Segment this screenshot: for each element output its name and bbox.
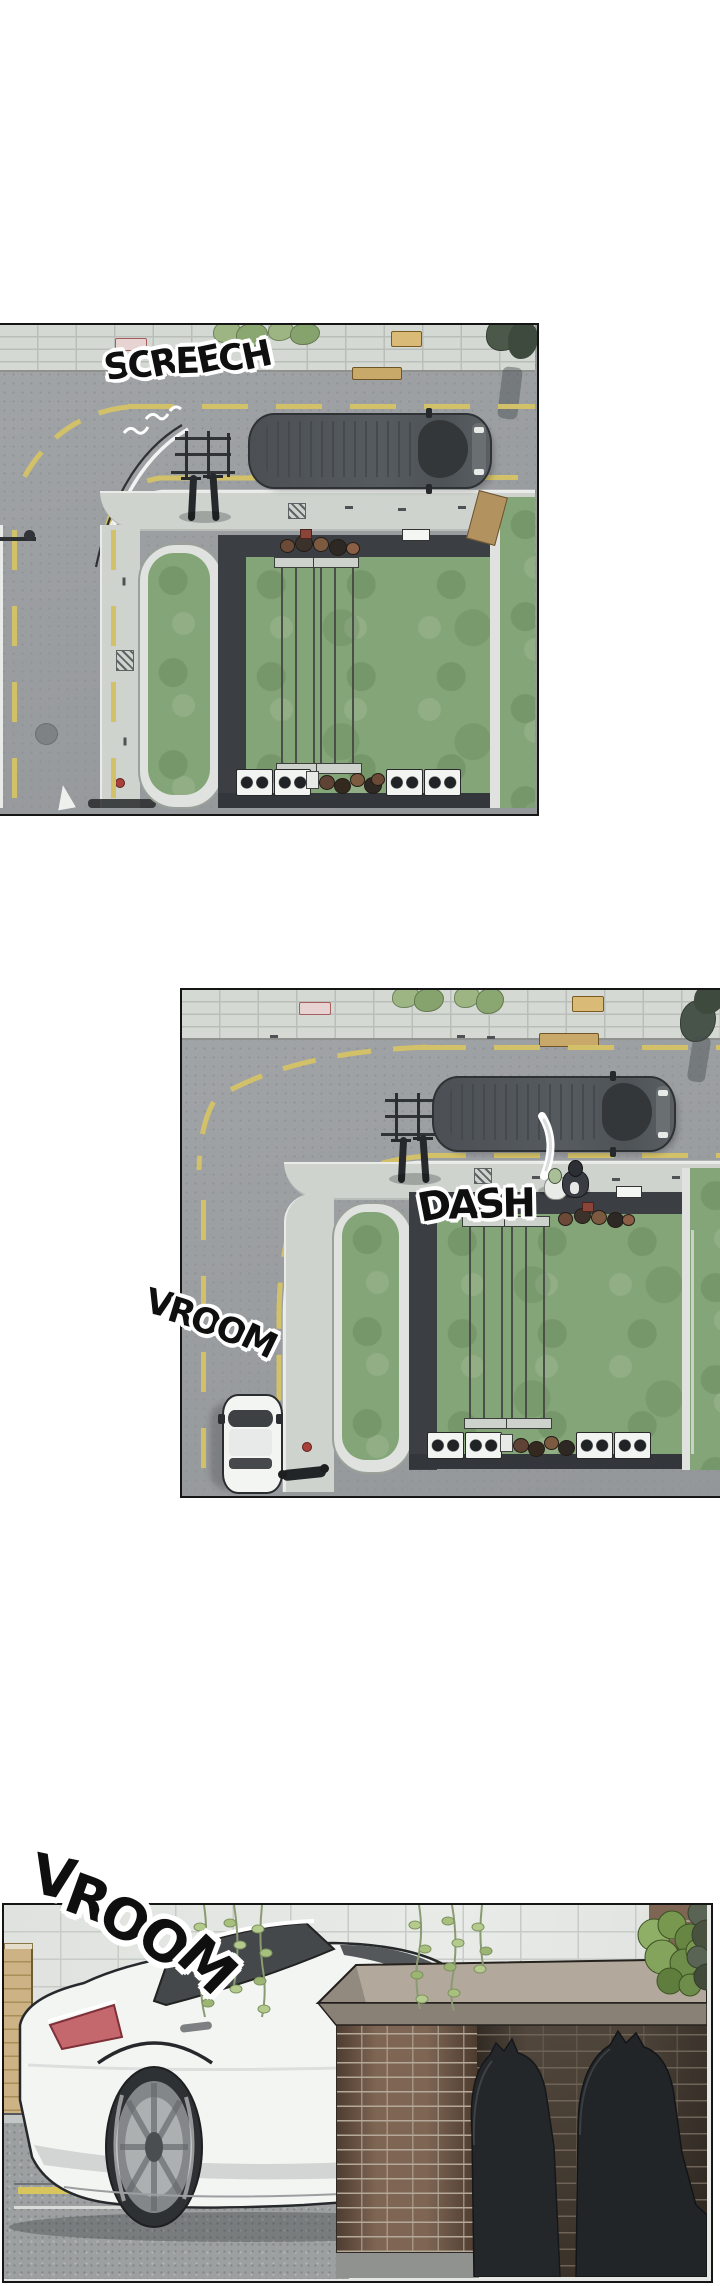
car-rear-window [229, 1458, 272, 1469]
curb-hatch [288, 503, 306, 519]
plant-pot [329, 539, 347, 556]
plant-pot [280, 539, 295, 553]
skid-squiggle [124, 427, 148, 433]
person-silhouette-right [576, 2031, 707, 2277]
curb-line-left [0, 525, 3, 808]
tick-mark [398, 508, 406, 511]
lamp-post-head [24, 530, 35, 541]
bicycle-handlebar [203, 475, 223, 478]
wall-cap-front [318, 2003, 707, 2025]
car-mirror [218, 1414, 225, 1424]
bike-rack-post [185, 431, 188, 479]
plant-pot [334, 778, 351, 794]
table-bench [313, 557, 359, 568]
lane-line-vertical [111, 530, 116, 806]
long-table [281, 563, 315, 771]
skid-squiggle [146, 414, 168, 419]
foreground-layer [4, 1905, 707, 2277]
green-strip-right [500, 497, 535, 808]
tick-mark [458, 506, 466, 509]
plant-pot [319, 775, 335, 790]
scooter-wheel [278, 1470, 287, 1479]
car-windshield [228, 1410, 273, 1427]
curb-hatch [116, 650, 134, 671]
tick-mark [123, 578, 126, 586]
long-table [320, 563, 354, 771]
courtyard-frame-left [218, 535, 246, 808]
panel-1-aerial-intersection: SCREECH [0, 323, 539, 816]
plant-pot [346, 542, 360, 555]
crate-stack [306, 771, 319, 789]
white-car-topview [222, 1394, 283, 1494]
ac-unit [236, 769, 273, 796]
panel-2-aerial-street: DASH [180, 988, 720, 1498]
bike-rack-bar [171, 471, 235, 474]
van-windshield [418, 420, 468, 478]
car-roof [229, 1429, 272, 1456]
plant-pot [371, 773, 385, 786]
van-mirror [426, 484, 432, 494]
person-light-head [548, 1168, 562, 1184]
hydrant-dot [115, 778, 125, 788]
plant-pot [350, 773, 365, 787]
bike-shadow [179, 511, 231, 523]
lane-line-curve [16, 407, 128, 493]
skid-squiggle [170, 407, 181, 411]
lane-line-vertical [12, 530, 17, 806]
bike-rack-bar [175, 437, 231, 440]
bike-rack-post [207, 431, 210, 479]
bike-rack-bar [175, 453, 231, 456]
bike-rack-post [227, 433, 230, 477]
lawn [148, 553, 210, 795]
courtyard-gate [402, 529, 430, 541]
sfx-dash: DASH [416, 1176, 534, 1228]
manhole-cover [35, 723, 58, 745]
parked-bicycles-row [88, 799, 156, 808]
scooter-wheel [320, 1464, 329, 1473]
comic-page: SCREECH [0, 0, 720, 2286]
ac-unit [424, 769, 461, 796]
ac-unit [386, 769, 423, 796]
panel-3-street-level [2, 1903, 713, 2283]
road-arrow-marking [54, 784, 76, 811]
tick-mark [345, 506, 353, 509]
person-dark-head [568, 1160, 583, 1177]
van-headlight [474, 469, 484, 475]
van [248, 413, 492, 489]
bike-rack-area [165, 431, 243, 527]
bicycle-handlebar [181, 477, 201, 480]
car-mirror [276, 1414, 283, 1424]
van-mirror [426, 408, 432, 418]
van-headlight [474, 427, 484, 433]
tick-mark [124, 738, 127, 746]
planter-box [300, 529, 312, 539]
plant-pot [313, 537, 329, 552]
person-dark-shirt [570, 1182, 579, 1194]
